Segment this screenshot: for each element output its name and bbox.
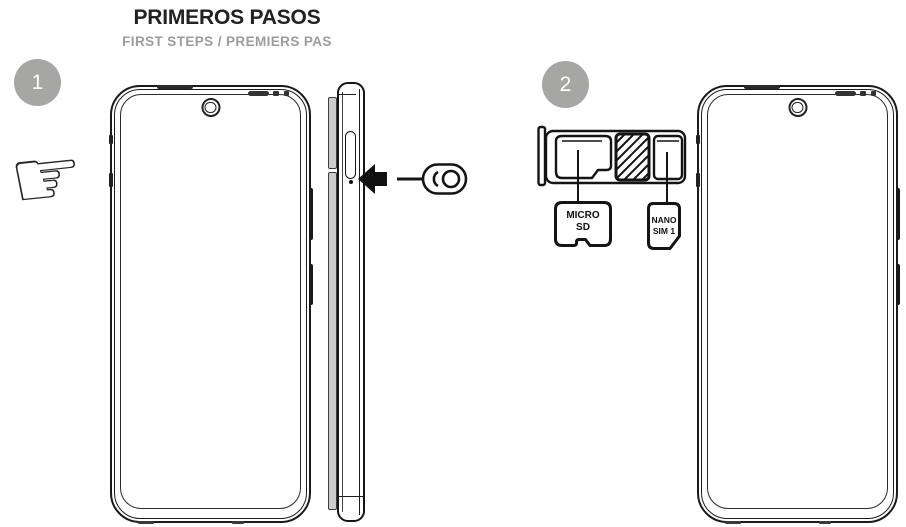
tool-ring-hole [443, 171, 459, 187]
phone-screen [707, 94, 888, 509]
front-camera-icon [788, 98, 807, 117]
sensor-dot [871, 91, 876, 96]
antenna-line-mark [744, 85, 780, 89]
sim-tray-seam [109, 173, 113, 187]
micro-sd-card-label: MICRO SD [554, 210, 612, 234]
page-subtitle: FIRST STEPS / PREMIERS PAS [87, 34, 367, 49]
volume-button [896, 188, 900, 240]
bottom-speaker-mark [232, 521, 244, 525]
power-button [896, 264, 900, 305]
tray-front-cap [539, 127, 546, 185]
side-rail-segment [328, 97, 337, 169]
phone-screen [120, 94, 301, 509]
sim-tray-seam [696, 173, 700, 187]
phone-front-view-2 [697, 85, 898, 523]
step-2-badge: 2 [542, 61, 589, 108]
sim-tray-slot [345, 131, 356, 179]
sensor-dot [284, 91, 289, 96]
phone-side-view [337, 82, 365, 522]
bottom-mic-mark [138, 521, 154, 525]
volume-button [309, 188, 313, 240]
step-1-number: 1 [32, 72, 44, 93]
bottom-speaker-mark [819, 521, 831, 525]
page-title: PRIMEROS PASOS [87, 6, 367, 30]
header: PRIMEROS PASOS FIRST STEPS / PREMIERS PA… [87, 6, 367, 49]
side-rail-segment [328, 172, 337, 510]
micro-sd-card: MICRO SD [554, 201, 612, 247]
leader-line-nano-sim [666, 152, 668, 204]
bottom-mic-mark [725, 521, 741, 525]
sim-tray-seam [109, 135, 113, 144]
side-top-seam [339, 94, 356, 95]
eject-tool-group [357, 160, 469, 198]
insertion-arrow-icon [358, 164, 387, 194]
power-button [309, 264, 313, 305]
leader-line-micro-sd [577, 150, 579, 203]
sensor-dot [860, 91, 866, 96]
earpiece-speaker [835, 91, 856, 96]
earpiece-speaker [248, 91, 269, 96]
nano-sim-slot [654, 136, 682, 179]
phone-front-view-1 [110, 85, 311, 523]
step-1-badge: 1 [14, 59, 61, 106]
antenna-line-mark [157, 85, 193, 89]
nano-sim-card: NANO SIM 1 [647, 202, 681, 250]
sensor-dot [273, 91, 279, 96]
front-camera-icon [201, 98, 220, 117]
quick-start-diagram: PRIMEROS PASOS FIRST STEPS / PREMIERS PA… [0, 0, 906, 527]
sim-tray-seam [696, 135, 700, 144]
nano-sim-card-label: NANO SIM 1 [647, 215, 681, 236]
step-2-number: 2 [560, 74, 572, 95]
side-bottom-seam [339, 496, 363, 497]
pointing-hand-icon: ☞ [6, 134, 88, 223]
eject-pin-hole [349, 180, 353, 184]
